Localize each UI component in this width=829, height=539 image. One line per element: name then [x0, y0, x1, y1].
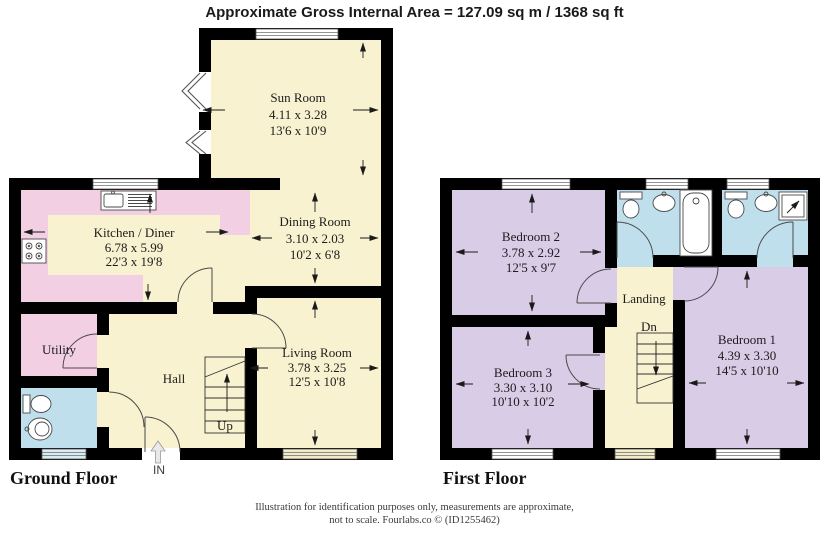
- room-label-sun-room: Sun Room: [270, 90, 325, 105]
- floorplan-page: Approximate Gross Internal Area = 127.09…: [0, 0, 829, 539]
- shower-icon: [779, 192, 807, 220]
- room-label-bedroom3: Bedroom 3: [494, 365, 552, 380]
- room-landing-lower: [605, 315, 673, 448]
- room-dim-metric-kitchen: 6.78 x 5.99: [105, 240, 164, 255]
- wc-toilet-icon: [23, 395, 51, 413]
- disclaimer: Illustration for identification purposes…: [0, 501, 829, 527]
- ground-floor-label: Ground Floor: [10, 468, 117, 489]
- first-floor-plan: Bedroom 2 3.78 x 2.92 12'5 x 9'7 Bedroom…: [440, 178, 820, 460]
- bathtub-icon: [680, 190, 712, 256]
- room-dim-metric-living: 3.78 x 3.25: [288, 360, 347, 375]
- room-label-dining: Dining Room: [279, 214, 350, 229]
- window-kitchen: [93, 179, 158, 189]
- room-dim-imperial-bedroom3: 10'10 x 10'2: [491, 394, 554, 409]
- disclaimer-line1: Illustration for identification purposes…: [0, 501, 829, 514]
- window-landing: [615, 449, 655, 459]
- window-bedroom2: [502, 179, 570, 189]
- room-dim-imperial-living: 12'5 x 10'8: [289, 374, 346, 389]
- entrance-label: IN: [153, 463, 165, 477]
- ground-floor-plan: Sun Room 4.11 x 3.28 13'6 x 10'9 Kitchen…: [9, 28, 393, 477]
- room-label-landing: Landing: [622, 291, 666, 306]
- room-wc: [21, 388, 97, 448]
- room-dim-metric-bedroom2: 3.78 x 2.92: [502, 245, 561, 260]
- disclaimer-line2: not to scale. Fourlabs.co © (ID1255462): [0, 514, 829, 527]
- room-label-hall: Hall: [163, 371, 186, 386]
- room-label-utility: Utility: [42, 342, 76, 357]
- room-dim-metric-bedroom3: 3.30 x 3.10: [494, 380, 553, 395]
- window-bedroom1: [716, 449, 780, 459]
- room-dim-metric-bedroom1: 4.39 x 3.30: [718, 348, 777, 363]
- kitchen-counter-right: [220, 190, 250, 235]
- stairs-up-label: Up: [217, 418, 233, 433]
- first-floor-label: First Floor: [443, 468, 526, 489]
- window-shower-room: [727, 179, 769, 189]
- room-label-living: Living Room: [282, 345, 352, 360]
- room-label-bedroom1: Bedroom 1: [718, 332, 776, 347]
- room-dim-imperial-sun-room: 13'6 x 10'9: [270, 123, 327, 138]
- room-dim-imperial-bedroom1: 14'5 x 10'10: [715, 363, 778, 378]
- window-sun-room: [256, 29, 338, 39]
- kitchen-counter-bottom: [21, 275, 143, 302]
- kitchen-sink-icon: [101, 191, 156, 210]
- floorplan-drawing: Sun Room 4.11 x 3.28 13'6 x 10'9 Kitchen…: [0, 0, 829, 539]
- hob-icon: [22, 239, 46, 263]
- stairs-down-label: Dn: [641, 319, 657, 334]
- window-living-room: [283, 449, 357, 459]
- window-bathroom: [646, 179, 688, 189]
- window-bedroom3: [492, 449, 553, 459]
- room-dim-imperial-dining: 10'2 x 6'8: [290, 247, 340, 262]
- room-dim-metric-sun-room: 4.11 x 3.28: [269, 107, 327, 122]
- room-dim-imperial-kitchen: 22'3 x 19'8: [106, 254, 163, 269]
- room-label-kitchen: Kitchen / Diner: [94, 225, 176, 240]
- room-dim-imperial-bedroom2: 12'5 x 9'7: [506, 260, 557, 275]
- window-wc: [42, 449, 86, 459]
- room-label-bedroom2: Bedroom 2: [502, 229, 560, 244]
- room-dim-metric-dining: 3.10 x 2.03: [286, 231, 345, 246]
